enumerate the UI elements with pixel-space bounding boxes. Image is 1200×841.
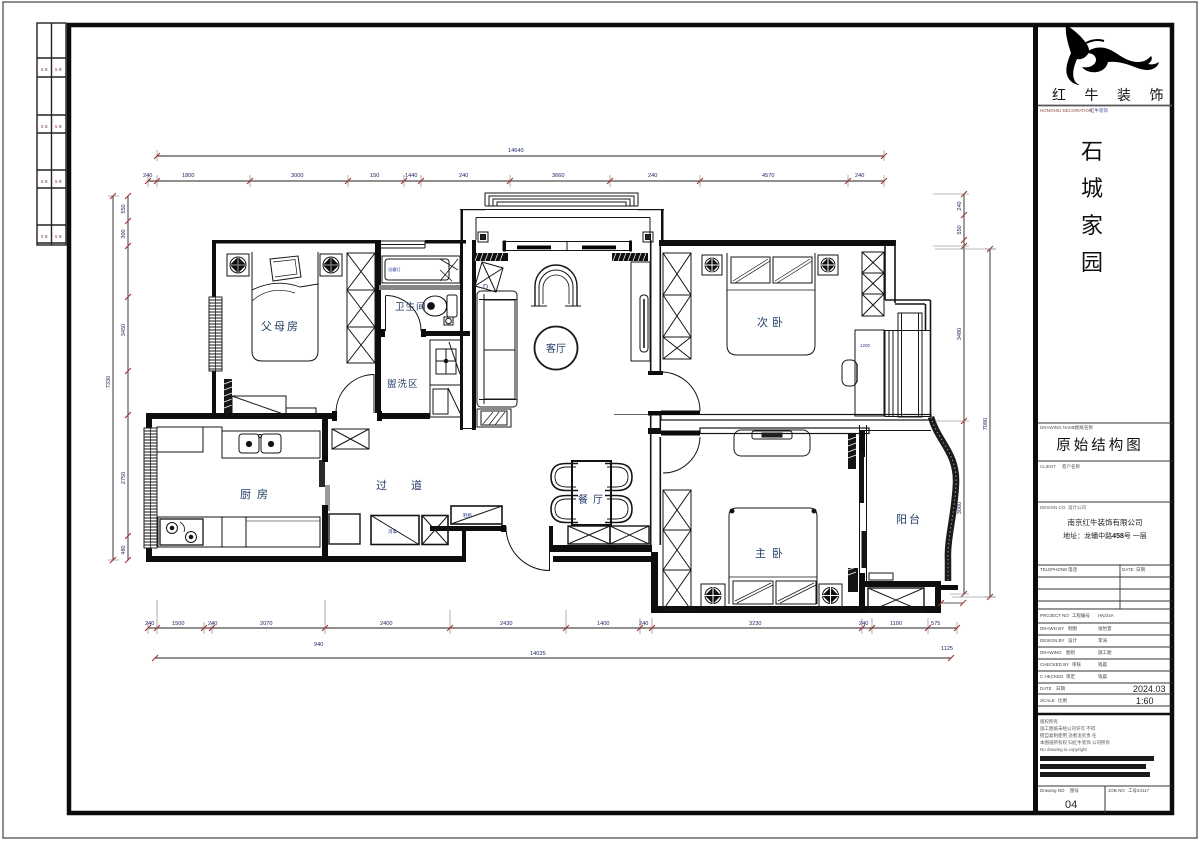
svg-text:DATE: DATE [1122,567,1134,572]
svg-text:14640: 14640 [508,148,524,154]
svg-text:D: D [483,284,488,291]
svg-text:240: 240 [145,621,154,627]
svg-text:李涛: 李涛 [1098,637,1107,643]
svg-text:钱晨: 钱晨 [1098,661,1107,668]
svg-text:园: 园 [1081,250,1103,275]
svg-text:厨房: 厨房 [240,488,274,501]
svg-text:JOB NO: JOB NO [1108,788,1125,793]
svg-text:张怡萱: 张怡萱 [1098,625,1112,632]
svg-text:PROJECT NO: PROJECT NO [1040,613,1069,618]
svg-text:卫生间: 卫生间 [395,301,427,313]
svg-text:CLIENT: CLIENT [1040,464,1056,469]
svg-text:575: 575 [931,621,940,627]
svg-text:DESIGN BY: DESIGN BY [1040,638,1065,643]
svg-text:2070: 2070 [260,621,272,627]
svg-text:设计: 设计 [1068,637,1077,644]
svg-text:地址：龙蟠中路458号 一层: 地址：龙蟠中路458号 一层 [1063,531,1147,540]
svg-text:父母房: 父母房 [261,320,300,333]
svg-text:红牛装饰: 红牛装饰 [1090,107,1108,114]
svg-text:550: 550 [121,204,127,213]
svg-text:TELEPHONE: TELEPHONE [1040,567,1067,572]
svg-text:1400: 1400 [597,621,609,627]
svg-text:1125: 1125 [941,646,953,652]
svg-text:过道: 过道 [376,478,446,492]
svg-text:240: 240 [208,621,217,627]
svg-text:Drawing NO: Drawing NO [1040,788,1065,793]
svg-text:审定: 审定 [1066,673,1075,680]
svg-text:04: 04 [1065,799,1077,811]
svg-text:客户名称: 客户名称 [1062,463,1080,470]
svg-text:HN/24A: HN/24A [1098,613,1114,618]
svg-text:2750: 2750 [121,472,127,484]
svg-text:3480: 3480 [957,328,963,340]
svg-text:浴霸灯: 浴霸灯 [388,266,401,273]
svg-text:240: 240 [859,621,868,627]
svg-text:主卧: 主卧 [755,547,789,560]
svg-text:施工图: 施工图 [1098,649,1112,656]
svg-text:940: 940 [314,642,323,648]
svg-text:设计公司: 设计公司 [1068,504,1086,511]
svg-text:240: 240 [459,173,468,179]
svg-text:原始结构图: 原始结构图 [1056,437,1144,454]
svg-text:7080: 7080 [983,418,989,430]
svg-text:施工图纸未经公司许可 不得: 施工图纸未经公司许可 不得 [1040,725,1096,732]
svg-text:制图: 制图 [1068,625,1077,632]
svg-text:300: 300 [121,229,127,238]
svg-text:1440: 1440 [405,173,417,179]
svg-text:1200: 1200 [860,343,871,348]
svg-text:2024.03: 2024.03 [1133,684,1166,694]
svg-text:240: 240 [648,173,657,179]
svg-text:1500: 1500 [172,621,184,627]
svg-text:家: 家 [1081,213,1103,238]
svg-text:城: 城 [1081,176,1103,201]
svg-text:3000: 3000 [291,173,303,179]
svg-text:电话: 电话 [1068,566,1077,573]
svg-text:DRAWN BY: DRAWN BY [1040,626,1064,631]
svg-text:图纸名称: 图纸名称 [1075,424,1093,431]
svg-text:240: 240 [957,201,963,210]
svg-text:14025: 14025 [530,651,546,657]
svg-text:版权所有: 版权所有 [1040,718,1058,725]
svg-text:南京红牛装饰有限公司: 南京红牛装饰有限公司 [1068,517,1143,527]
svg-text:3450: 3450 [121,324,127,336]
svg-text:石: 石 [1081,139,1103,164]
svg-text:客厅: 客厅 [546,342,566,355]
svg-text:图别: 图别 [1066,649,1075,656]
svg-text:阳台: 阳台 [896,512,922,526]
svg-text:审核: 审核 [1072,661,1081,668]
svg-text:DRAWING: DRAWING [1040,650,1062,655]
svg-text:擅自复制使用 违者追究责 任: 擅自复制使用 违者追究责 任 [1040,732,1097,739]
svg-text:7330: 7330 [106,376,112,388]
svg-text:比例: 比例 [1058,697,1067,704]
svg-text:DRAWING NAME: DRAWING NAME [1040,425,1076,430]
svg-text:消毒: 消毒 [388,528,397,535]
svg-text:鞋柜: 鞋柜 [463,512,472,519]
svg-text:240: 240 [143,173,152,179]
svg-text:红牛装饰: 红牛装饰 [1052,87,1182,103]
svg-text:CHECKED BY: CHECKED BY [1040,662,1069,667]
svg-text:HONGNIU DECORATION: HONGNIU DECORATION [1040,108,1092,113]
svg-text:3230: 3230 [749,621,761,627]
svg-text:DATE: DATE [1040,686,1052,691]
svg-text:1800: 1800 [182,173,194,179]
svg-text:DESIGN CO.: DESIGN CO. [1040,505,1067,510]
svg-text:240: 240 [855,173,864,179]
svg-text:No drawing is copyright: No drawing is copyright [1040,747,1088,752]
svg-text:240: 240 [639,621,648,627]
svg-text:3060: 3060 [957,502,963,514]
svg-text:550: 550 [957,225,963,234]
svg-text:4570: 4570 [762,173,774,179]
svg-text:C HECKED: C HECKED [1040,674,1064,679]
svg-text:480: 480 [121,545,127,554]
svg-text:盥洗区: 盥洗区 [387,378,419,390]
svg-text:2430: 2430 [500,621,512,627]
svg-text:工程编号: 工程编号 [1072,612,1090,619]
svg-text:SCALE: SCALE [1040,698,1055,703]
svg-text:150: 150 [370,173,379,179]
svg-text:3660: 3660 [552,173,564,179]
svg-text:1100: 1100 [890,621,902,627]
svg-text:餐厅: 餐厅 [578,493,608,506]
svg-text:1:60: 1:60 [1136,696,1154,706]
svg-text:本图纸所有权 归红牛装饰 公司所有: 本图纸所有权 归红牛装饰 公司所有 [1040,739,1110,746]
svg-text:次卧: 次卧 [757,315,787,329]
svg-text:2400: 2400 [380,621,392,627]
svg-text:钱晨: 钱晨 [1098,673,1107,680]
